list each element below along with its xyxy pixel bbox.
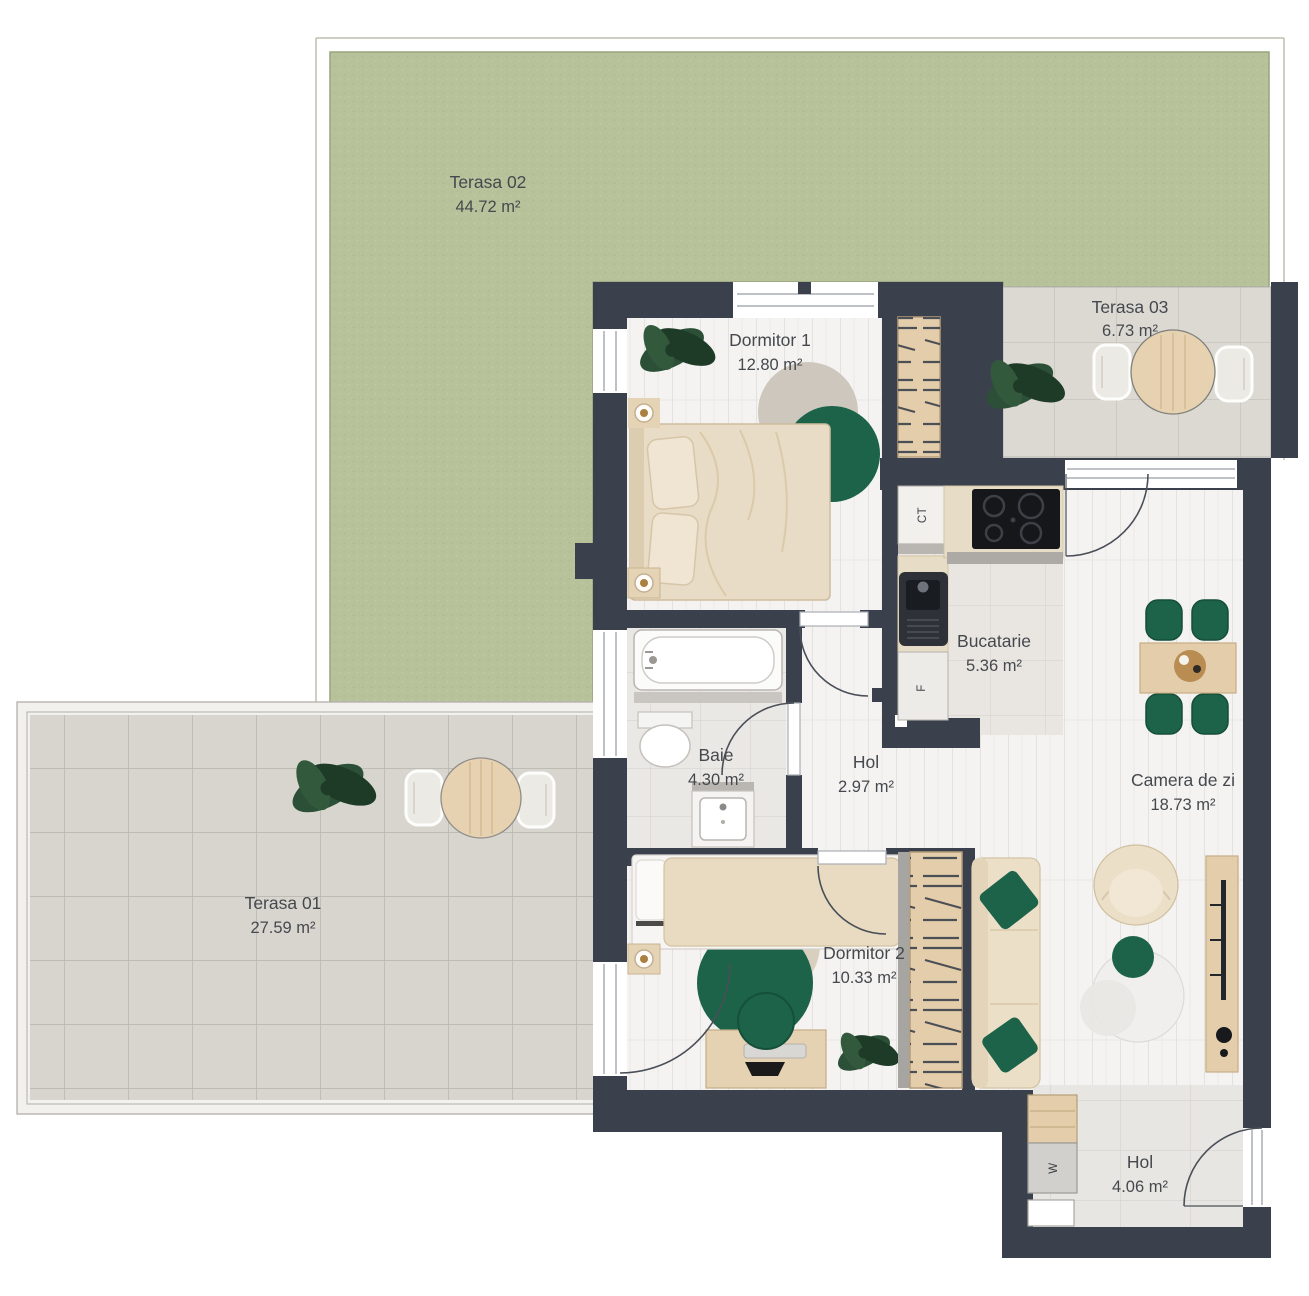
kitchen-sink (899, 572, 948, 646)
entry-hall-furniture: W (1028, 1095, 1077, 1226)
dining-chair (1146, 600, 1182, 640)
wall-bath-east-upper (786, 628, 802, 703)
wardrobe (898, 852, 962, 1088)
armchair (1094, 845, 1178, 925)
svg-text:Camera de zi: Camera de zi (1131, 770, 1235, 790)
terrace-chair (518, 773, 554, 827)
window-bath-left (593, 630, 627, 758)
svg-text:Hol: Hol (1127, 1152, 1153, 1172)
terrace-chair (406, 771, 442, 825)
svg-text:Bucatarie: Bucatarie (957, 631, 1031, 651)
wall-terrace03-right (1271, 282, 1298, 458)
pouf (1112, 936, 1154, 978)
svg-text:Baie: Baie (698, 745, 733, 765)
floor-plan: CT F (0, 0, 1309, 1296)
shoe-cabinet (1028, 1200, 1074, 1226)
table-centerpiece (1174, 650, 1206, 682)
svg-text:2.97 m²: 2.97 m² (838, 778, 894, 796)
wall-bottom (593, 1090, 1033, 1132)
wall-kitchen-west-stub (872, 688, 884, 702)
nightstand (628, 398, 660, 428)
sofa (972, 858, 1041, 1088)
cooktop-counter (944, 486, 1063, 564)
svg-text:12.80 m²: 12.80 m² (737, 356, 803, 374)
fridge-label: F (916, 684, 928, 692)
wall-kitchen-west (882, 282, 898, 748)
svg-text:Terasa 01: Terasa 01 (245, 893, 322, 913)
svg-text:5.36 m²: 5.36 m² (966, 657, 1022, 675)
dining-chair (1192, 600, 1228, 640)
svg-text:6.73 m²: 6.73 m² (1102, 322, 1158, 340)
svg-text:18.73 m²: 18.73 m² (1150, 796, 1216, 814)
sink-vanity (692, 782, 754, 847)
svg-text:Terasa 03: Terasa 03 (1092, 297, 1169, 317)
svg-text:10.33 m²: 10.33 m² (831, 969, 897, 987)
nightstand (628, 944, 660, 974)
bed-single (632, 855, 902, 949)
cooktop (972, 489, 1060, 549)
window-bedroom2-left (593, 962, 627, 1076)
bathtub (634, 630, 782, 703)
nightstand (628, 568, 660, 598)
svg-text:44.72 m²: 44.72 m² (455, 198, 521, 216)
dining-chair (1146, 694, 1182, 734)
window-living-top (1065, 460, 1237, 488)
window-bedroom1-top (733, 282, 878, 318)
tv (1221, 880, 1226, 1000)
terrace-chair (1094, 345, 1130, 399)
washer-label: W (1048, 1162, 1060, 1173)
washer-closet: W (1028, 1095, 1077, 1193)
svg-text:27.59 m²: 27.59 m² (250, 919, 316, 937)
wall-entry-bottom (1002, 1227, 1271, 1258)
wall-bedroom1-south (593, 610, 805, 628)
floor-plan-page: CT F (0, 0, 1309, 1296)
tv-unit (1206, 856, 1238, 1072)
boiler-closet: CT (898, 486, 944, 554)
svg-text:Terasa 02: Terasa 02 (450, 172, 527, 192)
wall-left-pier (575, 543, 595, 579)
toilet (638, 712, 692, 767)
rug-small (1080, 980, 1136, 1036)
svg-text:Dormitor 1: Dormitor 1 (729, 330, 811, 350)
dining-chair (1192, 694, 1228, 734)
wardrobe (898, 317, 940, 457)
terrace-chair (1216, 347, 1252, 401)
svg-text:Hol: Hol (853, 752, 879, 772)
svg-text:Dormitor 2: Dormitor 2 (823, 943, 905, 963)
svg-text:4.30 m²: 4.30 m² (688, 771, 744, 789)
window-bedroom1-left (593, 329, 627, 393)
svg-text:4.06 m²: 4.06 m² (1112, 1178, 1168, 1196)
entrance-door-slot (1243, 1128, 1271, 1207)
fridge: F (898, 652, 948, 720)
desk-chair (738, 993, 794, 1049)
boiler-label: CT (917, 507, 929, 523)
